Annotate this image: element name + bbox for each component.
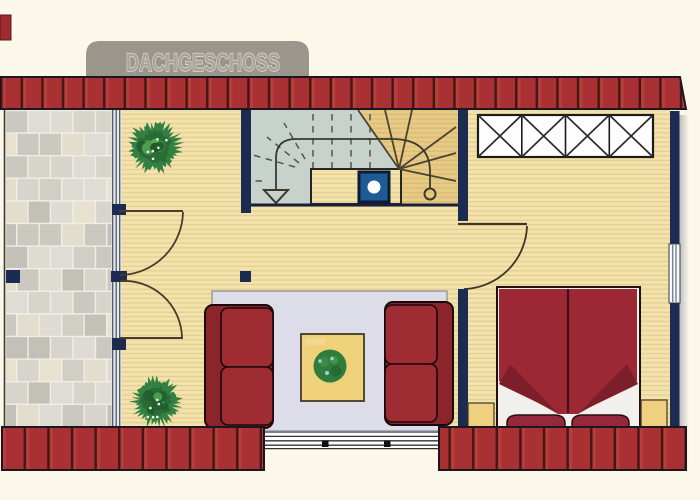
svg-text:DACHGESCHOSS: DACHGESCHOSS [126,49,280,77]
